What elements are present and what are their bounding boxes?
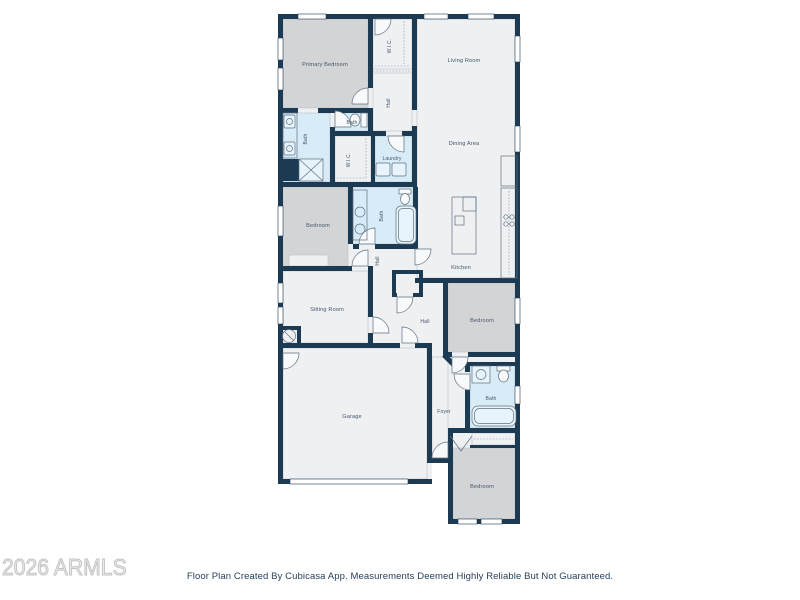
label-wic-top: W.I.C. (387, 39, 393, 54)
sink-glyph (284, 142, 295, 155)
bathtub-glyph (396, 206, 416, 244)
room-wic-mid (335, 136, 371, 182)
label-foyer: Foyer (437, 409, 451, 415)
washer-glyph (376, 163, 390, 176)
window (515, 36, 520, 62)
garage-door (290, 479, 408, 484)
label-living-room: Living Room (448, 58, 481, 64)
label-laundry: Laundry (382, 156, 401, 162)
window (515, 298, 520, 324)
toilet-bowl (401, 194, 410, 205)
window (278, 68, 283, 90)
label-bath-mid: Bath (379, 210, 385, 221)
window (278, 307, 283, 324)
window (458, 519, 477, 524)
label-sitting-room: Sitting Room (310, 307, 344, 313)
label-bedroom-bottom: Bedroom (470, 484, 494, 490)
label-hall-lower: Hall (420, 319, 429, 325)
label-wic-mid: W.I.C. (346, 153, 352, 168)
label-garage: Garage (342, 414, 362, 420)
label-hall-top: Hall (386, 98, 392, 107)
sink-glyph (472, 366, 490, 383)
label-dining-area: Dining Area (449, 141, 480, 147)
window (278, 283, 283, 303)
label-primary-bedroom: Primary Bedroom (302, 62, 348, 68)
label-primary-bath: Bath (303, 133, 309, 144)
floorplan-page: Primary Bedroom W.I.C. Hall Living Room … (0, 0, 800, 600)
dryer-glyph (392, 163, 406, 176)
window (515, 386, 520, 404)
bathtub-glyph (472, 406, 516, 426)
toilet-bowl (499, 370, 509, 382)
window (515, 126, 520, 152)
window (468, 14, 494, 19)
toilet-glyph (361, 113, 367, 127)
sink-glyph (284, 115, 295, 128)
window (278, 38, 283, 60)
closet-bedroom-left (289, 255, 328, 266)
floorplan-caption: Floor Plan Created By Cubicasa App. Meas… (0, 571, 800, 582)
room-hall-top (373, 73, 412, 131)
label-bedroom-right: Bedroom (470, 318, 494, 324)
label-bath-right: Bath (486, 396, 497, 402)
window (278, 206, 283, 236)
window (481, 519, 502, 524)
label-bedroom-left: Bedroom (306, 223, 330, 229)
label-powder-bath: Bath (347, 120, 358, 126)
window (424, 14, 448, 19)
window (298, 14, 326, 19)
label-hall-mid: Hall (375, 256, 381, 265)
floorplan-drawing: Primary Bedroom W.I.C. Hall Living Room … (0, 0, 800, 600)
label-kitchen: Kitchen (451, 265, 471, 271)
